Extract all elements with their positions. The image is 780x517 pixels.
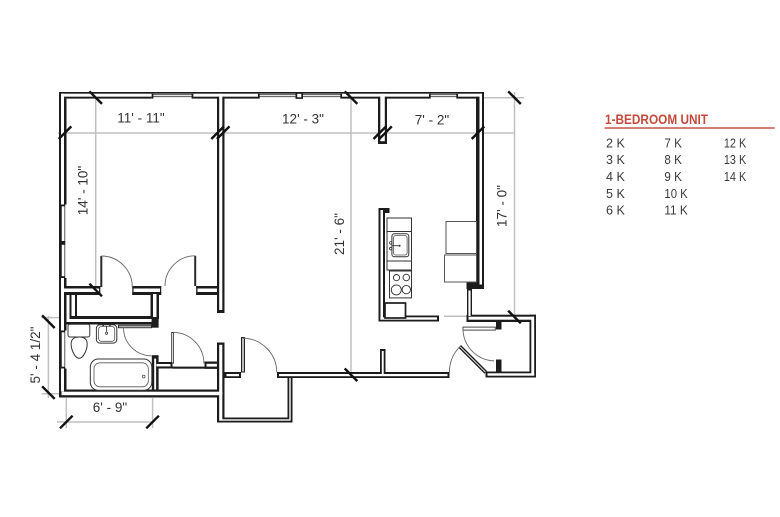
svg-text:14' - 10": 14' - 10" bbox=[76, 166, 91, 216]
svg-text:14 K: 14 K bbox=[724, 169, 747, 184]
svg-text:6 K: 6 K bbox=[606, 203, 625, 218]
svg-text:8 K: 8 K bbox=[664, 152, 682, 167]
svg-text:11 K: 11 K bbox=[664, 203, 688, 218]
svg-text:21' - 6": 21' - 6" bbox=[332, 213, 347, 255]
svg-text:13 K: 13 K bbox=[724, 152, 747, 167]
svg-text:11' - 11": 11' - 11" bbox=[117, 110, 165, 125]
svg-text:5 K: 5 K bbox=[606, 186, 625, 201]
svg-text:2 K: 2 K bbox=[606, 135, 625, 150]
svg-text:12 K: 12 K bbox=[724, 135, 747, 150]
svg-text:7' - 2": 7' - 2" bbox=[415, 112, 450, 127]
svg-text:4 K: 4 K bbox=[606, 169, 625, 184]
svg-text:5' - 4 1/2": 5' - 4 1/2" bbox=[28, 326, 43, 383]
svg-text:17' - 0": 17' - 0" bbox=[495, 185, 510, 227]
svg-text:3 K: 3 K bbox=[606, 152, 625, 167]
svg-text:12' - 3": 12' - 3" bbox=[282, 111, 324, 126]
svg-text:6' - 9": 6' - 9" bbox=[93, 400, 128, 415]
svg-text:7 K: 7 K bbox=[664, 135, 682, 150]
svg-text:10 K: 10 K bbox=[664, 186, 688, 201]
svg-text:9 K: 9 K bbox=[664, 169, 682, 184]
svg-text:1-BEDROOM UNIT: 1-BEDROOM UNIT bbox=[605, 112, 709, 127]
